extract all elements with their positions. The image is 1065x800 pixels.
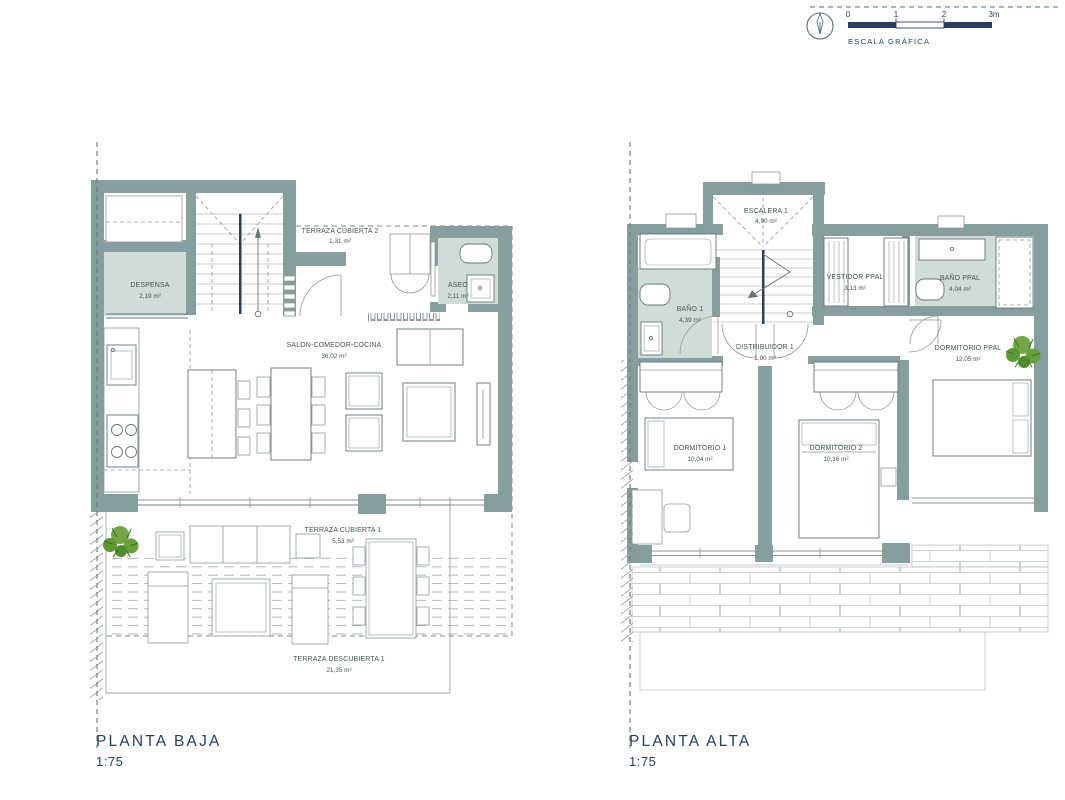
glazed-doors [627,543,910,565]
stove [107,415,138,467]
room-label-terraza-descubierta-1: TERRAZA DESCUBIERTA 1 [293,656,385,663]
shower [996,237,1033,308]
planta-alta-titleblock: PLANTA ALTA 1:75 [629,733,751,769]
dormitorio2-door [774,324,808,358]
toilet [460,244,492,263]
sofa [403,383,455,441]
room-area-dormitorio-ppal: 12,05 m² [955,356,980,363]
plan-scale: 1:75 [96,754,222,769]
vestidor-wardrobes [824,238,908,306]
graphic-scale-bar: 0 1 2 3m ESCALA GRÁFICA [846,10,1000,46]
entry-storage [106,196,182,242]
glazed-doors [104,494,512,514]
outdoor-dining-table [366,539,416,638]
side-table [156,532,184,560]
scale-caption: ESCALA GRÁFICA [848,37,930,46]
room-label-vestidor: VESTIDOR PPAL [827,274,884,281]
stair-down-arrow [748,290,758,298]
scale-bar-block: 0 1 2 3m ESCALA GRÁFICA [795,0,1065,60]
room-label-banyo-ppal: BAÑO PPAL [940,273,980,282]
room-label-distribuidor: DISTRIBUIDOR 1 [736,344,794,351]
dormitorio1-furniture [632,362,733,544]
room-area-distribuidor: 1,90 m² [754,355,776,362]
sun-lounger [212,579,270,636]
kitchen [104,328,139,492]
planta-alta-drawing: ESCALERA 1 4,90 m² BAÑO 1 4,39 m² VESTID… [618,130,1065,755]
room-area-despensa: 2,19 m² [139,293,161,300]
room-label-terraza-cubierta-1: TERRAZA CUBIERTA 1 [305,527,382,534]
floor-plan-sheet: 0 1 2 3m ESCALA GRÁFICA [0,0,1065,800]
room-label-despensa: DESPENSA [130,282,169,289]
sun-lounger [148,572,188,643]
double-sink-counter [919,239,985,260]
room-label-salon: SALON-COMEDOR-COCINA [287,342,382,349]
dining-table [271,368,311,460]
sun-lounger [292,575,328,644]
stair-up-arrow [255,227,261,238]
nightstand [881,468,896,486]
room-label-banyo1: BAÑO 1 [677,304,703,313]
room-area-banyo1: 4,39 m² [679,317,701,324]
scale-tick-2: 2 [942,10,947,19]
aseo-door-leaf [431,242,435,296]
window [912,498,1034,503]
room-label-aseo: ASEO [448,282,468,289]
scale-tick-3: 3m [988,10,999,19]
roof-decking [632,545,1048,690]
room-label-dormitorio2: DORMITORIO 2 [810,445,863,452]
plant-icon [103,526,139,557]
coffee-table [346,373,382,409]
dormitorio1-door [722,324,756,358]
side-table [296,534,320,558]
scale-tick-0: 0 [846,10,851,19]
room-area-terraza-cubierta-2: 1,31 m² [329,238,351,245]
room-area-vestidor: 3,13 m² [844,285,866,292]
toilet [640,284,670,305]
plan-title: PLANTA BAJA [96,733,222,751]
bed [933,380,1031,456]
room-label-terraza-cubierta-2: TERRAZA CUBIERTA 2 [302,228,379,235]
planta-baja-drawing: TERRAZA CUBIERTA 2 1,31 m² DESPENSA 2,19… [85,130,530,755]
room-area-escalera: 4,90 m² [755,218,777,225]
room-label-dormitorio-ppal: DORMITORIO PPAL [935,345,1002,352]
hall-closet [390,234,430,293]
wall-vent [938,216,964,228]
north-arrow-icon [807,13,833,39]
planta-baja-titleblock: PLANTA BAJA 1:75 [96,733,222,769]
wall-vent [666,214,696,228]
room-label-escalera: ESCALERA 1 [744,208,788,215]
distribuidor-doors [722,324,808,358]
room-area-aseo: 2,11 m² [447,293,468,300]
outdoor-sofa [190,526,290,563]
desk [632,490,662,544]
room-area-dormitorio2: 10,16 m² [823,456,848,463]
chair [664,504,690,532]
entry-door [300,275,341,316]
room-label-dormitorio1: DORMITORIO 1 [674,445,727,452]
threshold-strip [368,313,440,321]
wardrobe [640,362,722,392]
room-area-terraza-cubierta-1: 5,53 m² [332,538,354,545]
wall-vent [752,172,780,184]
plan-scale: 1:75 [629,754,751,769]
coffee-table [346,415,382,451]
room-area-dormitorio1: 10,04 m² [687,456,712,463]
bed [799,420,879,538]
plan-title: PLANTA ALTA [629,733,751,751]
toilet [916,279,944,300]
wardrobe [814,362,898,392]
tv-unit [477,383,490,445]
boundary-hatch [621,360,633,642]
room-area-banyo-ppal: 4,04 m² [949,286,971,293]
scale-tick-1: 1 [894,10,899,19]
staircase [713,197,813,324]
room-area-terraza-descubierta-1: 21,35 m² [326,667,351,674]
staircase [196,196,283,317]
room-area-salon: 36,02 m² [321,353,346,360]
